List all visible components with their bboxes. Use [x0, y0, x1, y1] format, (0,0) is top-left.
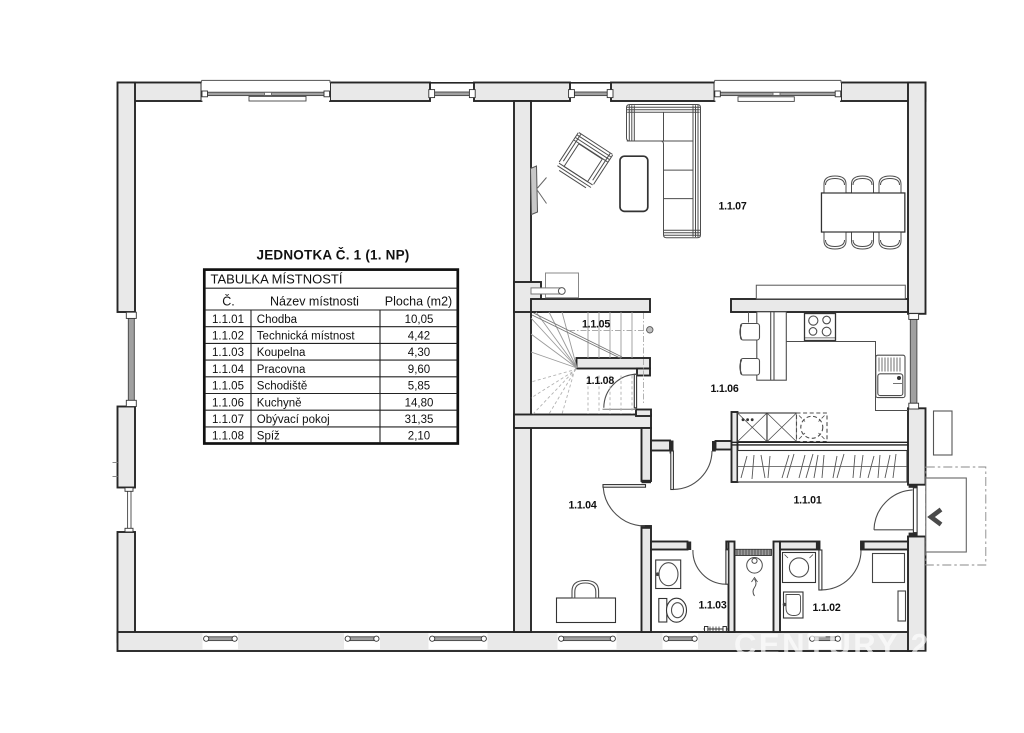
svg-text:2,10: 2,10 — [408, 431, 430, 443]
svg-text:14,80: 14,80 — [405, 397, 434, 409]
svg-text:JEDNOTKA Č. 1 (1. NP): JEDNOTKA Č. 1 (1. NP) — [257, 248, 410, 263]
svg-text:1.1.08: 1.1.08 — [586, 375, 614, 387]
svg-text:1.1.06: 1.1.06 — [711, 383, 739, 395]
svg-text:4,30: 4,30 — [408, 347, 430, 359]
svg-text:Technická místnost: Technická místnost — [257, 331, 356, 343]
svg-text:1.1.01: 1.1.01 — [794, 495, 822, 507]
svg-text:1.1.04: 1.1.04 — [212, 364, 245, 376]
svg-text:31,35: 31,35 — [405, 414, 434, 426]
svg-text:Koupelna: Koupelna — [257, 347, 306, 359]
svg-text:1.1.05: 1.1.05 — [582, 319, 610, 331]
svg-text:5,85: 5,85 — [408, 381, 430, 393]
svg-text:Obývací pokoj: Obývací pokoj — [257, 414, 330, 426]
svg-text:1.1.02: 1.1.02 — [813, 602, 841, 614]
svg-text:1.1.07: 1.1.07 — [719, 201, 747, 213]
svg-text:1.1.07: 1.1.07 — [212, 414, 244, 426]
svg-text:1.1.06: 1.1.06 — [212, 397, 244, 409]
svg-text:Schodiště: Schodiště — [257, 381, 308, 393]
svg-text:Název místnosti: Název místnosti — [270, 295, 359, 309]
svg-text:Č.: Č. — [222, 294, 235, 309]
svg-text:9,60: 9,60 — [408, 364, 430, 376]
svg-text:1.1.04: 1.1.04 — [569, 500, 597, 512]
svg-text:10,05: 10,05 — [405, 314, 434, 326]
svg-text:CENTURY 21: CENTURY 21 — [734, 627, 950, 662]
svg-text:TABULKA MÍSTNOSTÍ: TABULKA MÍSTNOSTÍ — [211, 272, 343, 287]
svg-text:1.1.01: 1.1.01 — [212, 314, 244, 326]
svg-text:4,42: 4,42 — [408, 331, 430, 343]
svg-text:Chodba: Chodba — [257, 314, 298, 326]
svg-text:Spíž: Spíž — [257, 431, 280, 443]
svg-text:1.1.03: 1.1.03 — [699, 600, 727, 612]
svg-text:Pracovna: Pracovna — [257, 364, 306, 376]
svg-text:1.1.02: 1.1.02 — [212, 331, 244, 343]
svg-text:Plocha (m2): Plocha (m2) — [385, 295, 452, 309]
svg-text:Kuchyně: Kuchyně — [257, 397, 302, 409]
svg-text:1.1.05: 1.1.05 — [212, 381, 244, 393]
svg-text:1.1.03: 1.1.03 — [212, 347, 244, 359]
svg-text:1.1.08: 1.1.08 — [212, 431, 244, 443]
